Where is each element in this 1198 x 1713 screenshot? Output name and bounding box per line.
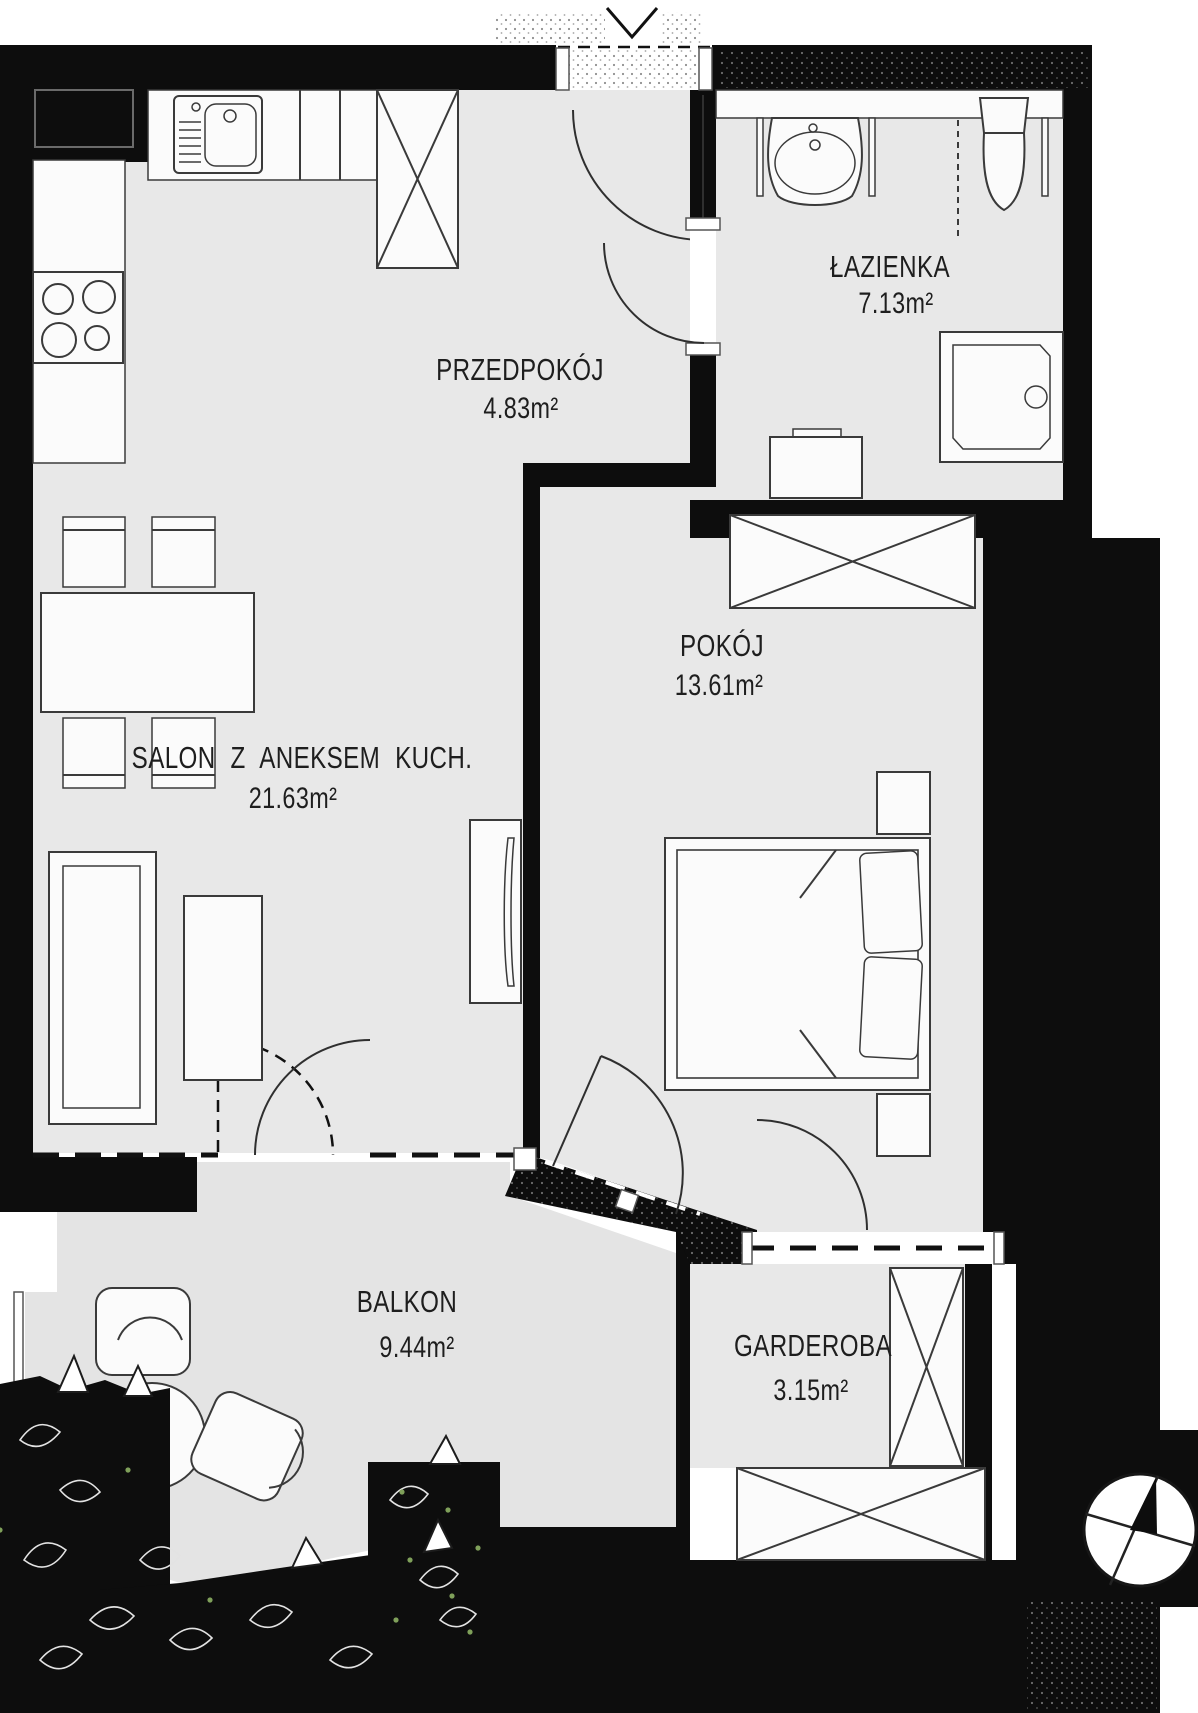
floor-plan: SALON Z ANEKSEM KUCH. 21.63m² PRZEDPOKÓJ… xyxy=(0,0,1198,1713)
pillow xyxy=(859,957,922,1060)
nightstand xyxy=(877,1094,930,1156)
room-area-garderoba: 3.15m² xyxy=(773,1374,848,1408)
pillow xyxy=(859,851,922,954)
balcony-chair xyxy=(96,1288,190,1375)
ground-hatch xyxy=(1027,1602,1157,1710)
shaft xyxy=(35,90,133,147)
dining-table xyxy=(41,593,254,712)
chair xyxy=(63,718,125,788)
wardrobe xyxy=(737,1468,985,1560)
room-label-salon: SALON Z ANEKSEM KUCH. xyxy=(132,740,473,776)
entrance-mat xyxy=(562,50,706,88)
room-area-lazienka: 7.13m² xyxy=(858,287,933,321)
entrance-chevron-icon xyxy=(607,8,657,37)
wardrobe xyxy=(730,515,975,608)
room-area-balkon: 9.44m² xyxy=(379,1331,454,1365)
room-area-przedpokoj: 4.83m² xyxy=(483,392,558,426)
nightstand xyxy=(877,772,930,834)
washbasin-icon xyxy=(768,118,862,205)
stove-icon xyxy=(33,272,123,363)
room-label-lazienka: ŁAZIENKA xyxy=(830,249,950,285)
room-label-pokoj: POKÓJ xyxy=(680,628,764,664)
shower-icon xyxy=(940,332,1063,462)
wardrobe xyxy=(890,1268,963,1466)
washing-machine-icon xyxy=(770,429,862,498)
tall-cabinet xyxy=(377,90,458,268)
floor-plan-drawing xyxy=(0,0,1198,1713)
room-label-balkon: BALKON xyxy=(357,1284,457,1320)
room-area-pokoj: 13.61m² xyxy=(675,669,764,703)
chair xyxy=(152,517,215,587)
double-bed xyxy=(665,838,930,1090)
compass-north-arrow-icon xyxy=(1084,1474,1196,1586)
wall-gap xyxy=(992,1264,1016,1600)
coffee-table xyxy=(184,896,262,1080)
room-label-garderoba: GARDEROBA xyxy=(734,1328,892,1364)
room-label-przedpokoj: PRZEDPOKÓJ xyxy=(436,352,604,388)
chair xyxy=(63,517,125,587)
kitchen-sink-icon xyxy=(174,96,262,173)
room-area-salon: 21.63m² xyxy=(249,782,338,816)
